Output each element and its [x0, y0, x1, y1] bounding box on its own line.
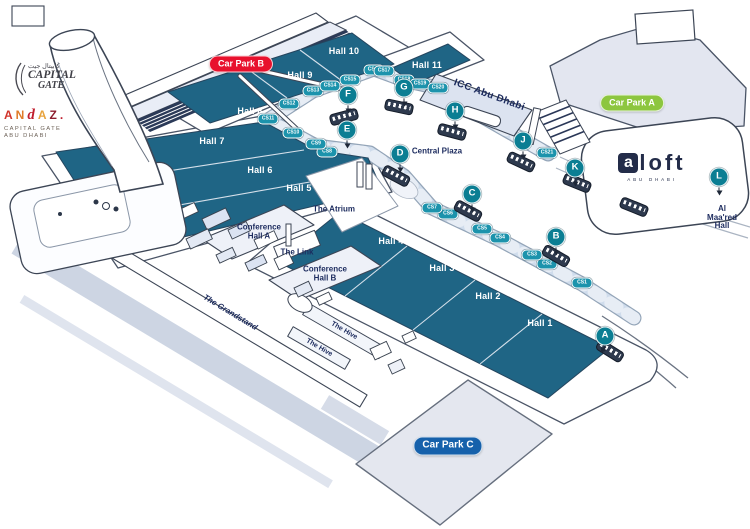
- bus-windows: [623, 200, 646, 212]
- entrance-marker-g: G: [395, 79, 414, 110]
- entrance-letter: D: [391, 145, 410, 164]
- arrow-down-icon: [344, 141, 350, 152]
- andaz-sub1: CAPITAL GATE: [4, 126, 76, 132]
- aloft-logo: a loft ABU DHABI: [606, 150, 698, 182]
- andaz-letter: Z: [50, 108, 58, 122]
- aloft-a-badge: a: [618, 153, 638, 173]
- entrance-marker-l: L: [710, 168, 729, 199]
- arrow-head: [401, 102, 407, 110]
- place-label-the-hive: The Hive: [329, 320, 358, 341]
- capital-gate-swoosh-icon: [12, 62, 26, 96]
- andaz-logo: ANdAZ. CAPITAL GATE ABU DHABI: [4, 106, 76, 139]
- suite-badge-cs21: CS21: [537, 148, 558, 159]
- arrow-head: [520, 155, 526, 163]
- arrow-head: [452, 125, 458, 133]
- arrow-down-icon: [469, 205, 475, 216]
- place-label-the-link: The Link: [281, 249, 314, 258]
- arrow-down-icon: [716, 188, 722, 199]
- entrance-letter: E: [338, 121, 357, 140]
- hall-label-hall-1: Hall 1: [527, 319, 552, 329]
- entrance-marker-f: F: [339, 86, 358, 117]
- hall-label-hall-3: Hall 3: [429, 264, 454, 274]
- andaz-sub2: ABU DHABI: [4, 133, 76, 139]
- bus-icon: [618, 196, 649, 218]
- place-label-conference-hall-b: Conference Hall B: [303, 265, 347, 282]
- entrance-marker-e: E: [338, 121, 357, 152]
- suite-badge-cs10: CS10: [283, 128, 304, 139]
- arrow-down-icon: [397, 165, 403, 176]
- entrance-marker-b: B: [547, 228, 566, 259]
- andaz-letter: N: [16, 108, 26, 122]
- suite-badge-cs20: CS20: [428, 83, 449, 94]
- entrance-marker-c: C: [463, 185, 482, 216]
- arrow-down-icon: [553, 248, 559, 259]
- andaz-wordmark: ANdAZ.: [4, 106, 76, 124]
- entrance-letter: C: [463, 185, 482, 204]
- suite-badge-cs17: CS17: [374, 66, 395, 77]
- place-label-al-maa-red-hall: Al Maa'red Hall: [707, 205, 737, 231]
- arrow-down-icon: [452, 122, 458, 133]
- arrow-head: [553, 251, 559, 259]
- entrance-letter: G: [395, 79, 414, 98]
- entrance-letter: B: [547, 228, 566, 247]
- capital-gate-logo: كابيتال جيت CAPITAL GATE: [12, 62, 76, 96]
- place-label-conference-hall-a: Conference Hall A: [237, 223, 281, 240]
- arrow-head: [397, 168, 403, 176]
- arrow-down-icon: [401, 99, 407, 110]
- place-label-the-grandstand: The Grandstand: [201, 294, 258, 333]
- hall-label-hall-4: Hall 4: [378, 237, 403, 247]
- hall-label-hall-11: Hall 11: [412, 61, 442, 71]
- andaz-letter: d: [27, 107, 36, 123]
- suite-badge-cs7: CS7: [422, 203, 443, 214]
- arrow-down-icon: [345, 106, 351, 117]
- aloft-sub: ABU DHABI: [606, 177, 698, 182]
- carpark-c-pill: Car Park C: [413, 437, 482, 456]
- andaz-letter: .: [60, 108, 64, 122]
- hall-label-hall-9: Hall 9: [287, 71, 312, 81]
- suite-badge-cs9: CS9: [306, 139, 327, 150]
- arrow-down-icon: [520, 152, 526, 163]
- suite-badge-cs14: CS14: [320, 81, 341, 92]
- entrance-letter: F: [339, 86, 358, 105]
- map-annotations: Hall 1Hall 2Hall 3Hall 4Hall 5Hall 6Hall…: [0, 0, 750, 529]
- place-label-the-hive: The Hive: [304, 337, 333, 358]
- arrow-head: [716, 191, 722, 199]
- entrance-letter: H: [446, 102, 465, 121]
- arrow-head: [344, 144, 350, 152]
- carpark-b-pill: Car Park B: [209, 56, 273, 73]
- andaz-letter: A: [4, 108, 14, 122]
- venue-map: Hall 1Hall 2Hall 3Hall 4Hall 5Hall 6Hall…: [0, 0, 750, 529]
- suite-badge-cs5: CS5: [472, 224, 493, 235]
- entrance-marker-d: D: [391, 145, 410, 176]
- arrow-head: [345, 109, 351, 117]
- arrow-head: [596, 347, 606, 357]
- carpark-a-pill: Car Park A: [600, 95, 664, 112]
- suite-badge-cs15: CS15: [340, 75, 361, 86]
- hall-label-hall-10: Hall 10: [329, 47, 359, 57]
- suite-badge-cs4: CS4: [490, 233, 511, 244]
- entrance-marker-k: K: [566, 159, 585, 190]
- suite-badge-cs12: CS12: [279, 99, 300, 110]
- place-label-central-plaza: Central Plaza: [412, 148, 462, 157]
- entrance-letter: K: [566, 159, 585, 178]
- capital-gate-line2: GATE: [38, 81, 76, 91]
- arrow-down-icon: [572, 179, 578, 190]
- arrow-head: [572, 182, 578, 190]
- suite-badge-cs11: CS11: [258, 114, 279, 125]
- aloft-wordmark: a loft: [606, 150, 698, 176]
- entrance-letter: A: [596, 327, 615, 346]
- suite-badge-cs3: CS3: [522, 250, 543, 261]
- hall-label-hall-2: Hall 2: [475, 292, 500, 302]
- entrance-marker-a: A: [596, 327, 615, 358]
- arrow-head: [469, 208, 475, 216]
- hall-label-hall-5: Hall 5: [286, 184, 311, 194]
- andaz-letter: A: [38, 108, 48, 122]
- entrance-letter: J: [514, 132, 533, 151]
- arrow-down-icon: [596, 345, 608, 357]
- hall-label-hall-6: Hall 6: [247, 166, 272, 176]
- suite-badge-cs1: CS1: [572, 278, 593, 289]
- place-label-the-atrium: The Atrium: [313, 206, 355, 215]
- entrance-marker-h: H: [446, 102, 465, 133]
- capital-gate-logo-text: كابيتال جيت CAPITAL GATE: [28, 62, 76, 90]
- hall-label-hall-7: Hall 7: [199, 137, 224, 147]
- aloft-rest: loft: [639, 150, 685, 176]
- entrance-marker-j: J: [514, 132, 533, 163]
- entrance-letter: L: [710, 168, 729, 187]
